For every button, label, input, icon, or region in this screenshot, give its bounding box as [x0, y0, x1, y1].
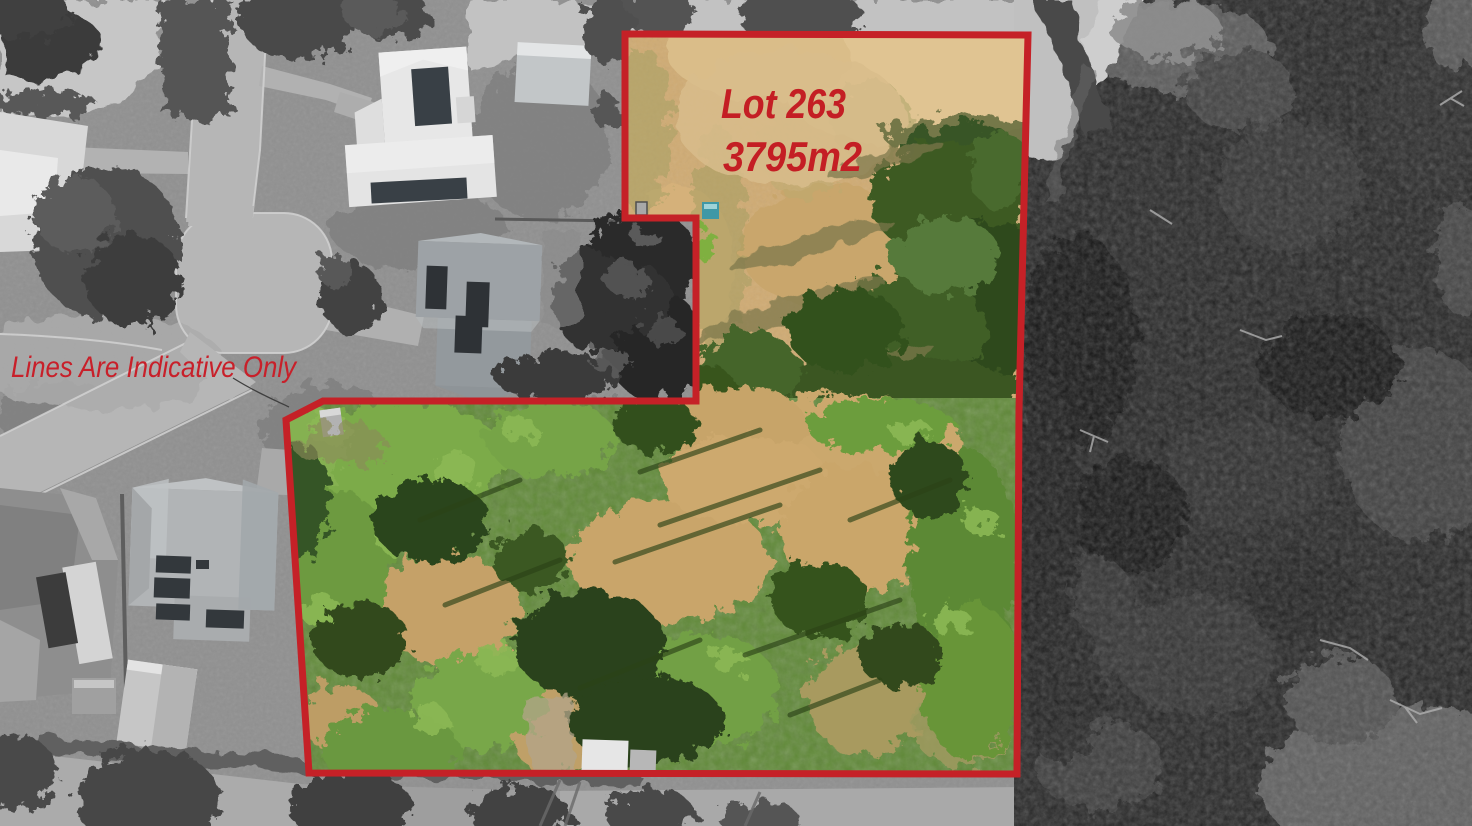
svg-text:Lines Are Indicative Only: Lines Are Indicative Only — [11, 351, 298, 384]
svg-text:Lot 263: Lot 263 — [721, 80, 846, 127]
svg-text:3795m2: 3795m2 — [723, 133, 862, 180]
